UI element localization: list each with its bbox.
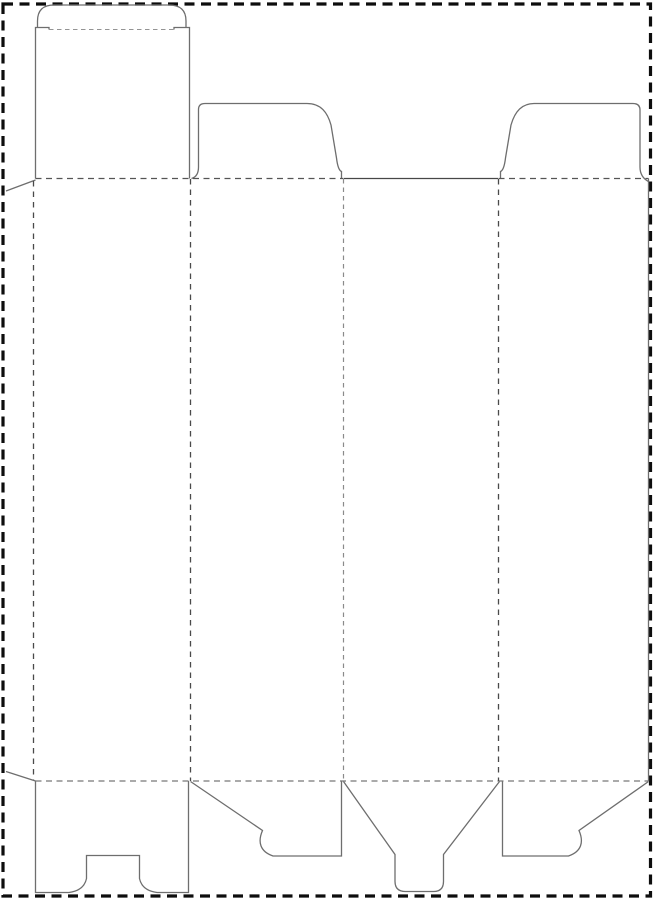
glue-flap-top-slant [6, 180, 36, 191]
glue-flap-bottom-slant [6, 772, 36, 782]
dust-flap-panel2-outline [192, 104, 342, 179]
bottom-tuck-funnel-panel3-outline [344, 782, 500, 892]
lid-right-edge-and-shoulder [174, 28, 190, 179]
bottom-flap-panel1-notched-outline [36, 781, 189, 893]
page-margin-border [3, 4, 651, 896]
tuck-flap-outline [38, 5, 187, 28]
dust-flap-panel4-outline [501, 104, 649, 182]
bottom-flap-panel2-outline [191, 782, 342, 857]
box-dieline-drawing [0, 0, 654, 900]
bottom-flap-panel4-outline [503, 782, 649, 857]
dieline-page [0, 0, 654, 900]
lid-left-edge-and-shoulder [36, 28, 50, 179]
